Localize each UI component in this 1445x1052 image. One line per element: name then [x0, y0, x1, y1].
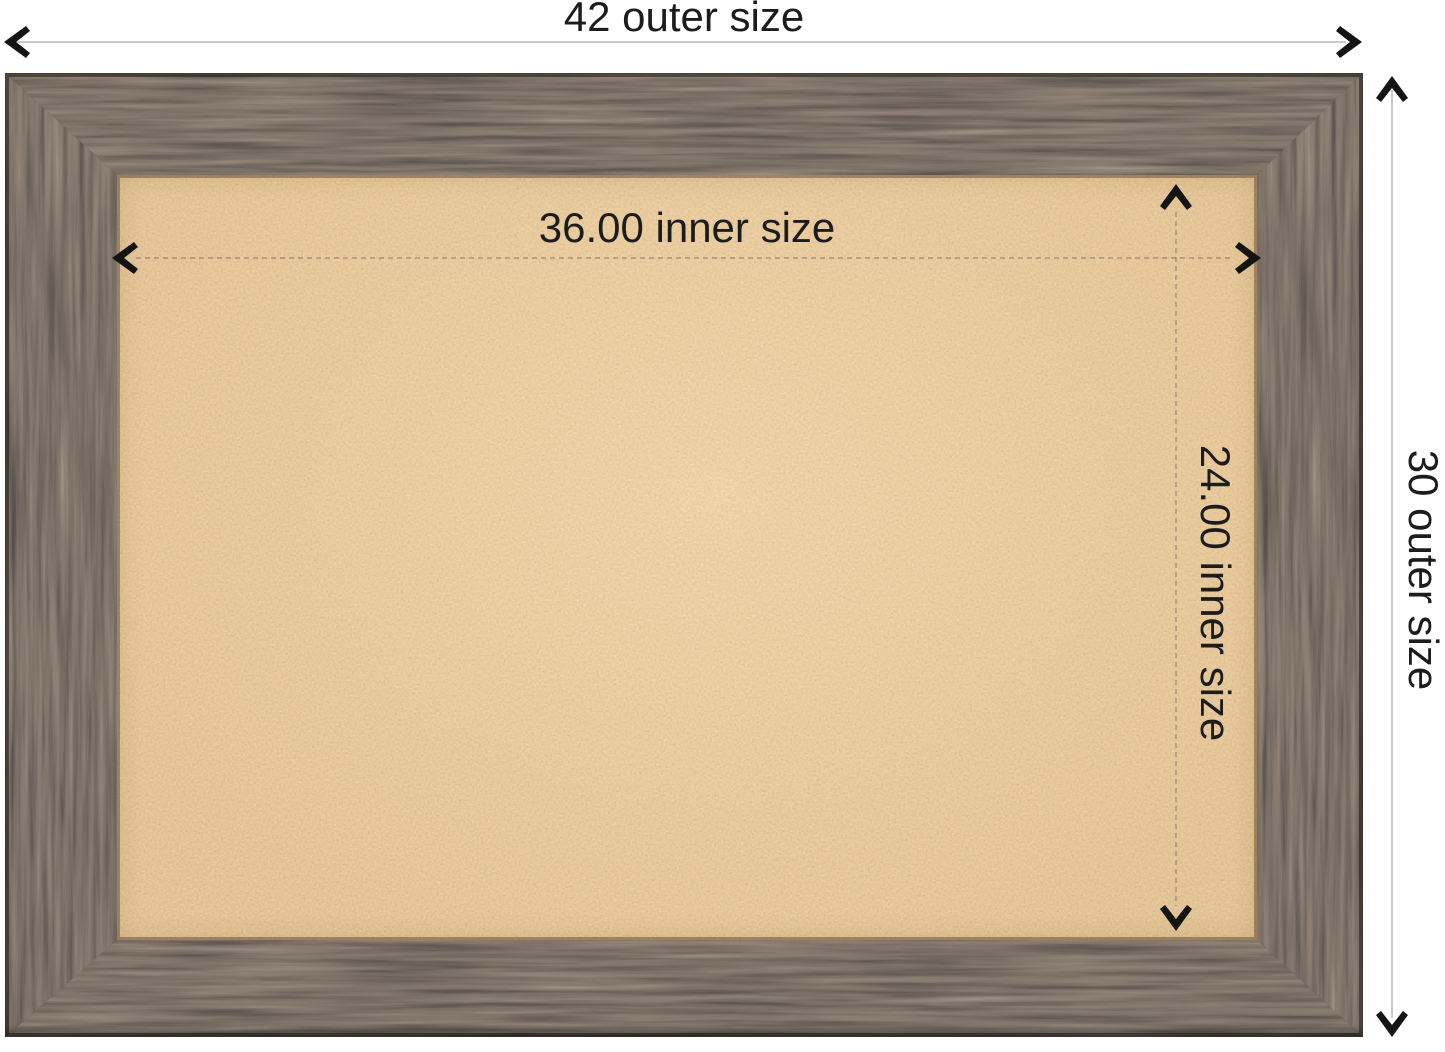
- outer-height-dimension-line: [1391, 90, 1393, 1018]
- outer-width-dimension-line: [14, 41, 1346, 43]
- inner-arrowhead-down-icon: [1159, 904, 1193, 934]
- frame-top: [5, 73, 1363, 175]
- inner-width-dimension-line: [130, 251, 1240, 265]
- inner-arrowhead-up-icon: [1159, 181, 1193, 211]
- inner-height-label: 24.00 inner size: [1192, 221, 1238, 965]
- outer-width-label: 42 outer size: [5, 0, 1363, 40]
- frame-bottom: [5, 940, 1363, 1037]
- frame-left: [5, 73, 117, 1037]
- arrowhead-right-icon: [1335, 25, 1365, 59]
- arrowhead-left-icon: [1, 25, 31, 59]
- inner-width-label: 36.00 inner size: [117, 205, 1257, 251]
- frame-right: [1257, 73, 1363, 1037]
- inner-arrowhead-right-icon: [1234, 241, 1264, 275]
- inner-arrowhead-left-icon: [109, 241, 139, 275]
- inner-height-dimension-line: [1169, 206, 1183, 912]
- product-dimension-diagram: { "annotations": { "outer_width_label": …: [0, 0, 1445, 1046]
- outer-height-label: 30 outer size: [1402, 88, 1445, 1052]
- cork-surface: [117, 175, 1257, 940]
